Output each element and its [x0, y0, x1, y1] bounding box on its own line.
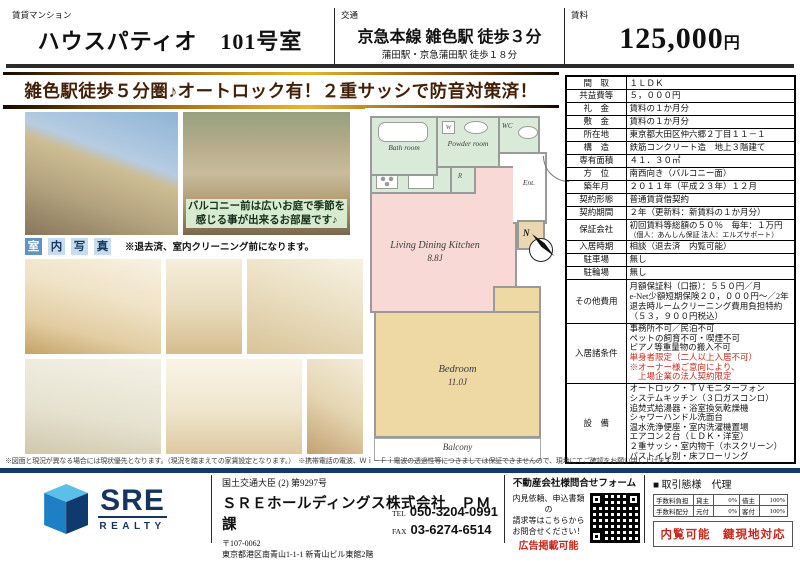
qr-finder-pattern: [627, 493, 640, 506]
fee-row: 手数料配分 元付 0% 客付 100%: [654, 506, 788, 517]
balcony-label: Balcony: [375, 442, 540, 452]
inquiry-form-title: 不動産会社様問合せフォーム: [509, 475, 640, 489]
row-label: 共益費等: [566, 89, 626, 102]
qr-code: [590, 493, 640, 543]
fee-cell: 0%: [714, 506, 740, 517]
interior-label-char: 室: [25, 238, 42, 255]
photo-building-exterior: [25, 112, 178, 235]
header-access: 交通 京急本線 雑色駅 徒歩３分 蒲田駅・京急蒲田駅 徒歩１８分: [335, 8, 565, 64]
row-label: 契約形態: [566, 193, 626, 206]
interior-label-char: 内: [48, 238, 65, 255]
row-value: ４１．３０㎡: [626, 154, 795, 167]
row-label: その他費用: [566, 279, 626, 323]
table-row-other-costs: その他費用 月額保証料（口振）：５５０円／月 e-Net少額短期保険２０，０００…: [566, 279, 795, 323]
fax-number: 03-6274-6514: [411, 522, 492, 537]
row-label: 方 位: [566, 167, 626, 180]
fee-cell: 手数料負担: [654, 495, 694, 506]
ad-permission-note: 広告掲載可能: [509, 541, 588, 552]
garden-caption: バルコニー前は広いお庭で季節を 感じる事が出来るお部屋です♪: [186, 199, 347, 228]
photo-storage: [307, 359, 363, 454]
equipment-value: オートロック・ＴＶモニターフォン システムキッチン（３口ガスコンロ） 追焚式給湯…: [626, 383, 795, 463]
row-label: 入居時期: [566, 240, 626, 253]
row-label: 駐車場: [566, 253, 626, 266]
bedroom-name: Bedroom: [376, 363, 539, 376]
row-label: 設 備: [566, 383, 626, 463]
photo-kitchen: [166, 259, 242, 354]
viewing-status-box: 内覧可能 鍵現地対応: [653, 521, 793, 547]
contact-numbers: TEL 050-3204-0991 FAX 03-6274-6514: [392, 503, 498, 539]
tel-number: 050-3204-0991: [410, 504, 498, 519]
ldk-size: 8.8J: [380, 252, 490, 264]
floorplan-fridge-space: R: [450, 166, 476, 194]
interior-note: ※退去済、室内クリーニング前になります。: [125, 239, 314, 253]
row-value: 賃料の１か月分: [626, 102, 795, 115]
toilet-icon: [518, 126, 538, 139]
table-row: 敷 金賃料の１か月分: [566, 115, 795, 128]
table-row: 築年月２０１１年（平成２３年）１２月: [566, 180, 795, 193]
tel-label: TEL: [392, 509, 406, 518]
footer: SRE REALTY 国土交通大臣 (2) 第9297号 ＳＲＥホールディングス…: [0, 473, 800, 545]
table-row: 構 造鉄筋コンクリート造 地上３階建て: [566, 141, 795, 154]
logo-wordmark: SRE REALTY: [98, 486, 167, 532]
viewing-status-text: 内覧可能 鍵現地対応: [661, 529, 786, 541]
garden-caption-line2: 感じる事が出来るお部屋です♪: [186, 214, 347, 228]
row-value: 無し: [626, 253, 795, 266]
table-row: 礼 金賃料の１か月分: [566, 102, 795, 115]
compass-icon: N: [523, 228, 559, 264]
table-row: 駐輪場無し: [566, 266, 795, 279]
sre-cube-icon: [44, 484, 88, 534]
table-row: 間 取１ＬＤＫ: [566, 76, 795, 89]
floorplan-entrance: Ent.: [513, 152, 547, 224]
conditions-value: 事務所不可／民泊不可 ペットの飼育不可・喫煙不可 ピアノ等重量物の搬入不可 単身…: [626, 323, 795, 383]
row-label: 駐輪場: [566, 266, 626, 279]
fee-cell: 100%: [760, 495, 788, 506]
rent-label: 賃料: [571, 9, 788, 21]
rent-value: 125,000円: [571, 22, 788, 56]
header-rent: 賃料 125,000円: [565, 8, 794, 64]
table-row: 契約形態普通賃貸借契約: [566, 193, 795, 206]
fee-cell: 0%: [714, 495, 740, 506]
property-title: ハウスパティオ 101号室: [12, 24, 328, 56]
guarantor-line1: 初回賃料等総額の５０％ 毎年：１万円: [630, 220, 792, 230]
guarantor-line2: （個人：あんしん保証 法人：エルズサポート）: [630, 231, 792, 239]
photo-bedroom: [247, 259, 363, 354]
access-sub: 蒲田駅・京急蒲田駅 徒歩１８分: [341, 47, 558, 61]
logo-realty-text: REALTY: [98, 521, 167, 532]
ldk-name: Living Dining Kitchen: [380, 240, 490, 252]
floorplan-closet: [493, 286, 541, 313]
catch-copy-text: 雑色駅徒歩５分圏♪オートロック有！２重サッシで防音対策済！: [3, 75, 559, 105]
row-value: ２年（更新料：新賃料の１か月分）: [626, 206, 795, 219]
bathtub-icon: [378, 122, 428, 142]
company-logo: SRE REALTY: [0, 473, 211, 545]
other-cost-line: e-Net少額短期保険２０，０００円～／2年: [630, 291, 792, 301]
transaction-section: ■ 取引態様 代理 手数料負担 貸主 0% 借主 100% 手数料配分 元付 0…: [645, 473, 800, 545]
row-value: 相談（退去済 内覧可能）: [626, 240, 795, 253]
table-row: 所在地東京都大田区仲六郷２丁目１１－１: [566, 128, 795, 141]
other-cost-line: 退去時ルームクリーニング費用負担特約: [630, 301, 792, 311]
inquiry-form-body: 内見依頼、申込書類の 請求等はこちらから お問合せください！ 広告掲載可能: [509, 493, 640, 552]
floorplan-powder-room: W Powder room: [436, 116, 500, 168]
compass-north-label: N: [523, 228, 530, 238]
fax-line: FAX 03-6274-6514: [392, 521, 498, 539]
fee-cell: 貸主: [694, 495, 714, 506]
photo-bathroom: [25, 359, 161, 454]
row-value: １ＬＤＫ: [626, 76, 795, 89]
other-cost-line: 月額保証料（口振）：５５０円／月: [630, 281, 792, 291]
row-value: 鉄筋コンクリート造 地上３階建て: [626, 141, 795, 154]
property-details-table: 間 取１ＬＤＫ 共益費等５，０００円 礼 金賃料の１か月分 敷 金賃料の１か月分…: [565, 75, 796, 464]
rent-unit: 円: [724, 35, 740, 52]
flyer-page: 賃貸マンション ハウスパティオ 101号室 交通 京急本線 雑色駅 徒歩３分 蒲…: [0, 0, 800, 566]
table-row-conditions: 入居諸条件 事務所不可／民泊不可 ペットの飼育不可・喫煙不可 ピアノ等重量物の搬…: [566, 323, 795, 383]
row-value: 南西向き（バルコニー面）: [626, 167, 795, 180]
row-label: 専有面積: [566, 154, 626, 167]
fee-table: 手数料負担 貸主 0% 借主 100% 手数料配分 元付 0% 客付 100%: [653, 494, 788, 517]
header-property: 賃貸マンション ハウスパティオ 101号室: [6, 8, 335, 64]
rent-amount: 125,000: [619, 22, 724, 55]
interior-label-char: 写: [71, 238, 88, 255]
floorplan-bedroom: Bedroom 11.0J: [374, 311, 541, 438]
postal-code: 〒107-0062: [222, 539, 498, 550]
row-label: 所在地: [566, 128, 626, 141]
company-info: 国土交通大臣 (2) 第9297号 ＳＲＥホールディングス株式会社 ＰＭ課 〒1…: [212, 473, 504, 545]
access-label: 交通: [341, 9, 558, 21]
inquiry-line: お問合せください！: [509, 526, 588, 537]
garden-caption-line1: バルコニー前は広いお庭で季節を: [186, 200, 347, 214]
fee-cell: 客付: [740, 506, 760, 517]
condition-line-red: 上場企業の法人契約限定: [630, 372, 792, 382]
company-address: 〒107-0062 東京都港区南青山1-1-1 新青山ビル東館2階: [222, 539, 498, 560]
inquiry-form-section: 不動産会社様問合せフォーム 内見依頼、申込書類の 請求等はこちらから お問合せく…: [505, 473, 644, 545]
qr-finder-pattern: [590, 530, 603, 543]
table-row: 契約期間２年（更新料：新賃料の１か月分）: [566, 206, 795, 219]
fee-cell: 100%: [760, 506, 788, 517]
other-costs-value: 月額保証料（口振）：５５０円／月 e-Net少額短期保険２０，０００円～／2年 …: [626, 279, 795, 323]
ldk-label: Living Dining Kitchen 8.8J: [380, 240, 490, 264]
interior-photos-header: 室 内 写 真 ※退去済、室内クリーニング前になります。: [25, 237, 355, 255]
row-label: 入居諸条件: [566, 323, 626, 383]
other-cost-line: （５３，９００円税込）: [630, 311, 792, 321]
powder-sink-icon: [464, 121, 488, 134]
row-label: 契約期間: [566, 206, 626, 219]
catch-copy-banner: 雑色駅徒歩５分圏♪オートロック有！２重サッシで防音対策済！: [3, 72, 559, 109]
entrance-label: Ent.: [513, 178, 545, 187]
row-value: 無し: [626, 266, 795, 279]
floorplan-bathroom: Bath room: [370, 116, 438, 176]
table-row-guarantor: 保証会社 初回賃料等総額の５０％ 毎年：１万円 （個人：あんしん保証 法人：エル…: [566, 219, 795, 240]
wc-label: WC: [502, 122, 513, 130]
table-row: 方 位南西向き（バルコニー面）: [566, 167, 795, 180]
license-number: 国土交通大臣 (2) 第9297号: [222, 476, 498, 489]
tel-line: TEL 050-3204-0991: [392, 503, 498, 521]
address-line: 東京都港区南青山1-1-1 新青山ビル東館2階: [222, 550, 498, 561]
fee-row: 手数料負担 貸主 0% 借主 100%: [654, 495, 788, 506]
fee-cell: 借主: [740, 495, 760, 506]
fee-cell: 元付: [694, 506, 714, 517]
table-row-equipment: 設 備 オートロック・ＴＶモニターフォン システムキッチン（３口ガスコンロ） 追…: [566, 383, 795, 463]
inquiry-line: 請求等はこちらから: [509, 515, 588, 526]
row-label: 保証会社: [566, 219, 626, 240]
transaction-type-title: ■ 取引態様 代理: [653, 476, 794, 491]
fridge-label: R: [452, 168, 468, 185]
row-label: 礼 金: [566, 102, 626, 115]
access-main: 京急本線 雑色駅 徒歩３分: [341, 23, 558, 47]
row-value: 普通賃貸借契約: [626, 193, 795, 206]
table-row: 共益費等５，０００円: [566, 89, 795, 102]
qr-finder-pattern: [590, 493, 603, 506]
bedroom-label: Bedroom 11.0J: [376, 363, 539, 389]
property-type-label: 賃貸マンション: [12, 9, 328, 21]
floor-plan: Living Dining Kitchen 8.8J R Bath room W…: [365, 108, 561, 464]
logo-sre-text: SRE: [98, 486, 167, 518]
row-label: 敷 金: [566, 115, 626, 128]
row-value: 東京都大田区仲六郷２丁目１１－１: [626, 128, 795, 141]
fax-label: FAX: [392, 527, 406, 536]
interior-label-char: 真: [94, 238, 111, 255]
inquiry-line: 内見依頼、申込書類の: [509, 493, 588, 515]
photo-living-room: [25, 259, 161, 354]
row-value: 賃料の１か月分: [626, 115, 795, 128]
photo-closet: [166, 359, 302, 454]
bathroom-label: Bath room: [372, 144, 436, 153]
row-label: 構 造: [566, 141, 626, 154]
row-value: ２０１１年（平成２３年）１２月: [626, 180, 795, 193]
washer-label: W: [442, 121, 455, 134]
row-value: ５，０００円: [626, 89, 795, 102]
floorplan-wc: WC: [498, 116, 540, 154]
row-label: 築年月: [566, 180, 626, 193]
disclaimer-text: ※図面と現況が異なる場合には現状優先となります。（現況を踏まえての家賃設定となり…: [5, 456, 797, 466]
header: 賃貸マンション ハウスパティオ 101号室 交通 京急本線 雑色駅 徒歩３分 蒲…: [6, 8, 794, 68]
inquiry-instructions: 内見依頼、申込書類の 請求等はこちらから お問合せください！ 広告掲載可能: [509, 493, 588, 552]
table-row: 入居時期相談（退去済 内覧可能）: [566, 240, 795, 253]
fee-cell: 手数料配分: [654, 506, 694, 517]
table-row: 専有面積４１．３０㎡: [566, 154, 795, 167]
row-label: 間 取: [566, 76, 626, 89]
bedroom-size: 11.0J: [376, 376, 539, 389]
powder-room-label: Powder room: [438, 140, 498, 149]
table-row: 駐車場無し: [566, 253, 795, 266]
guarantor-value: 初回賃料等総額の５０％ 毎年：１万円 （個人：あんしん保証 法人：エルズサポート…: [626, 219, 795, 240]
